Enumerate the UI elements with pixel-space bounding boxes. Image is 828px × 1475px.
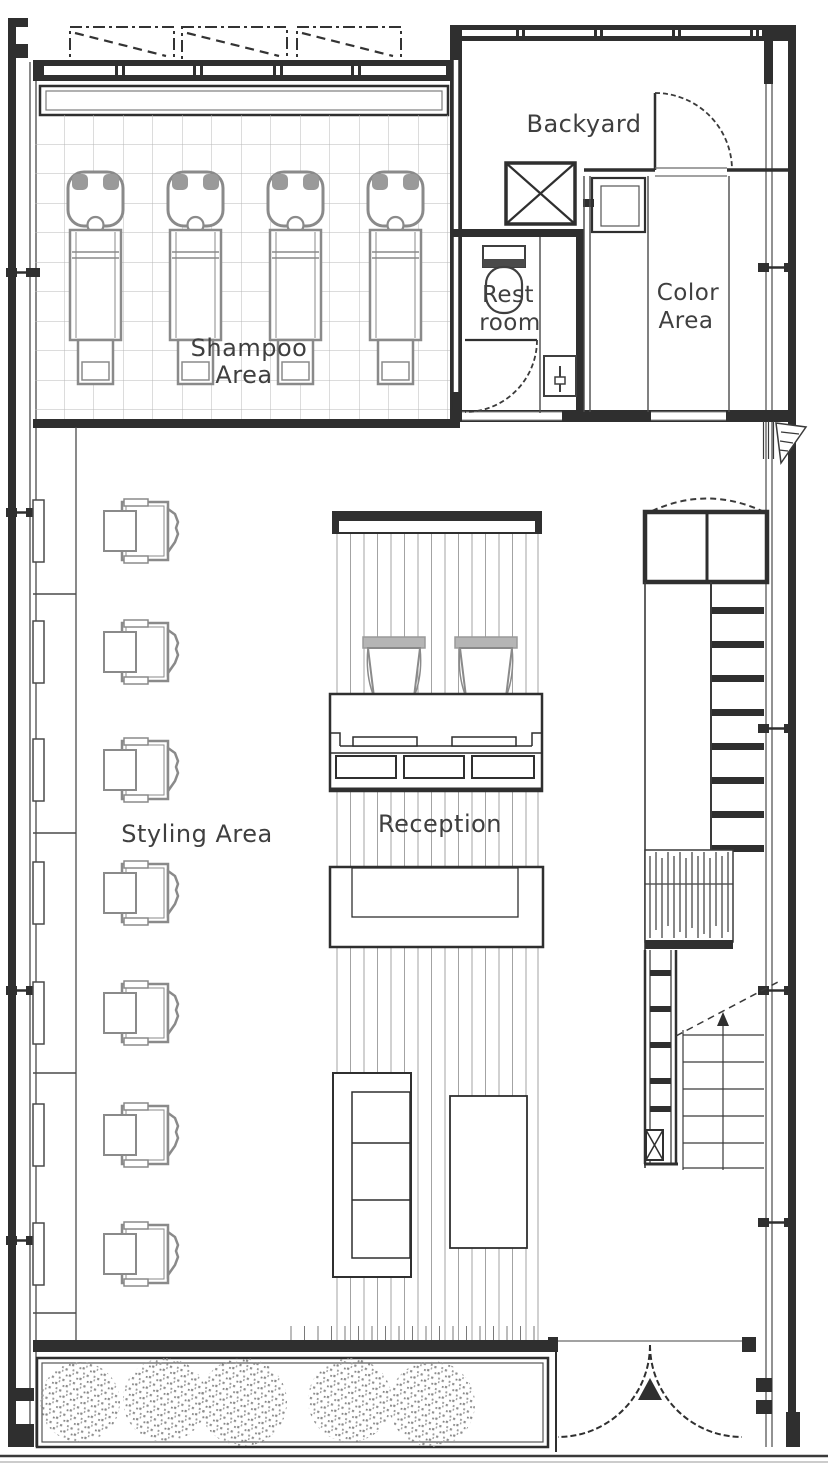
side-door-swing [764, 421, 807, 463]
floor-plan: Shampoo Area Backyard [0, 0, 828, 1475]
shampoo-shelf [40, 86, 448, 115]
styling-area-label: Styling Area [121, 820, 273, 848]
styling-chair [104, 499, 178, 563]
color-area-label-1: Color [657, 280, 720, 306]
duct-shaft [506, 163, 575, 224]
storefront [0, 1337, 828, 1462]
restroom-label-1: Rest [482, 282, 534, 308]
shampoo-area: Shampoo Area [33, 27, 460, 428]
shrub [123, 1358, 207, 1442]
entrance-door-right [650, 1345, 742, 1437]
backyard-label: Backyard [527, 110, 642, 138]
restroom-label-2: room [479, 310, 541, 336]
deck-header [333, 512, 541, 533]
reception-guest-chair [363, 637, 425, 697]
upper-stair-treads [711, 582, 764, 852]
shrub [40, 1362, 120, 1442]
reception-guest-chair [455, 637, 517, 697]
shampoo-area-label-1: Shampoo [191, 334, 308, 362]
color-area-label-2: Area [659, 308, 714, 334]
display-bench [330, 867, 543, 947]
staircase [644, 421, 806, 1170]
utility-sink [583, 178, 645, 232]
back-of-house: Backyard Rest room [450, 25, 795, 422]
shampoo-partition-wall [33, 419, 460, 428]
restroom-sink [544, 356, 576, 396]
styling-chair [104, 738, 178, 802]
deck-end-ticks [291, 1326, 534, 1341]
shrub [308, 1358, 392, 1442]
reception-counter [330, 694, 542, 791]
entrance-door-left [558, 1345, 650, 1437]
lower-stair-flight [676, 982, 778, 1170]
stair-break-band [645, 850, 733, 949]
coffee-table [450, 1096, 527, 1248]
shampoo-area-label-2: Area [215, 361, 272, 389]
restroom: Rest room [450, 229, 584, 419]
styling-chair [104, 861, 178, 925]
mirror-ledges [33, 500, 44, 1285]
stair-landing [645, 499, 767, 583]
front-wall [33, 1340, 555, 1352]
entrance [548, 1337, 772, 1452]
skylight-panels [70, 27, 401, 61]
reception-area: Reception [291, 512, 543, 1341]
planter-box [37, 1358, 548, 1447]
styling-area: Styling Area [33, 427, 273, 1341]
reception-label: Reception [378, 810, 502, 838]
styling-chair [104, 1103, 178, 1167]
shrub [199, 1358, 287, 1446]
styling-chair [104, 1222, 178, 1286]
ladder-flight [644, 950, 678, 1164]
styling-chair [104, 981, 178, 1045]
restroom-door [453, 340, 537, 416]
styling-chair [104, 620, 178, 684]
shrub [389, 1361, 475, 1447]
waiting-sofa [333, 1073, 411, 1277]
backyard-door [655, 93, 732, 170]
shampoo-window-wall [33, 60, 457, 81]
